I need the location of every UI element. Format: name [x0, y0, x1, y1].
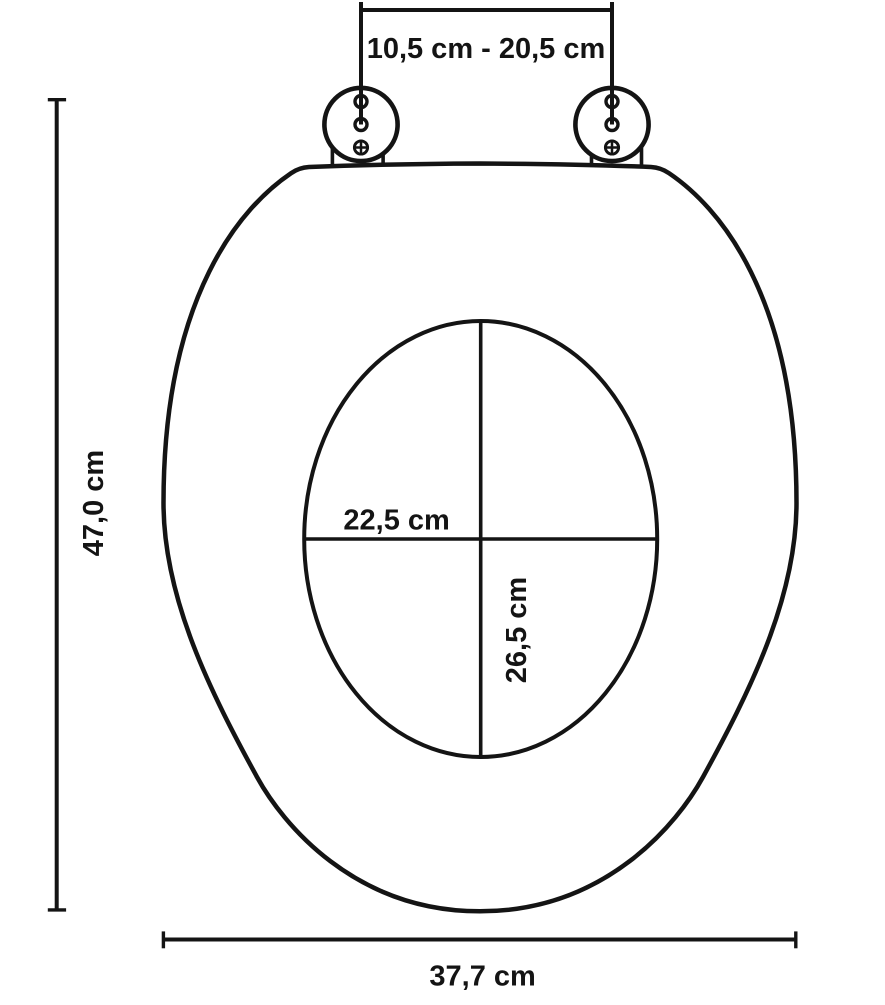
svg-text:10,5 cm - 20,5 cm: 10,5 cm - 20,5 cm [367, 33, 606, 65]
svg-text:22,5 cm: 22,5 cm [343, 505, 449, 537]
svg-text:47,0 cm: 47,0 cm [78, 450, 110, 556]
svg-text:37,7 cm: 37,7 cm [429, 961, 535, 993]
svg-text:26,5 cm: 26,5 cm [501, 577, 533, 683]
